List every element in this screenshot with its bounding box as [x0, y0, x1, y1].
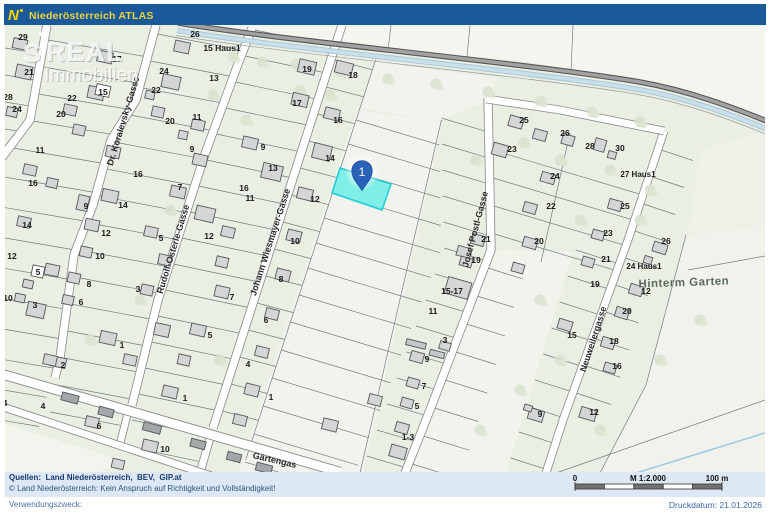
- svg-text:11: 11: [36, 145, 45, 155]
- svg-text:13: 13: [209, 73, 219, 83]
- svg-text:3: 3: [443, 335, 448, 345]
- svg-text:20: 20: [56, 109, 66, 119]
- svg-text:16: 16: [612, 361, 622, 371]
- svg-text:12: 12: [310, 194, 320, 204]
- svg-text:24: 24: [12, 104, 22, 114]
- svg-text:3: 3: [136, 284, 141, 294]
- svg-text:9: 9: [261, 142, 266, 152]
- svg-text:12: 12: [101, 228, 111, 238]
- svg-text:10: 10: [5, 293, 13, 303]
- svg-text:27 Haus1: 27 Haus1: [620, 170, 656, 179]
- svg-text:20: 20: [622, 306, 632, 316]
- svg-text:19: 19: [590, 279, 600, 289]
- svg-text:14: 14: [22, 220, 32, 230]
- svg-text:11: 11: [429, 306, 438, 316]
- svg-text:23: 23: [603, 228, 613, 238]
- svg-text:16: 16: [28, 178, 38, 188]
- svg-text:10: 10: [95, 251, 105, 261]
- svg-text:4: 4: [246, 359, 251, 369]
- svg-text:25: 25: [620, 201, 630, 211]
- svg-text:21: 21: [481, 234, 491, 244]
- svg-text:22: 22: [67, 93, 77, 103]
- svg-text:M 1:2.000: M 1:2.000: [630, 474, 667, 483]
- svg-text:16: 16: [333, 115, 343, 125]
- svg-text:15 Haus1: 15 Haus1: [203, 43, 241, 53]
- svg-text:9: 9: [190, 144, 195, 154]
- svg-text:30: 30: [615, 143, 625, 153]
- svg-text:8: 8: [87, 279, 92, 289]
- svg-text:7: 7: [230, 292, 235, 302]
- svg-text:11: 11: [246, 193, 255, 203]
- svg-text:22: 22: [151, 85, 161, 95]
- svg-text:13: 13: [268, 163, 278, 173]
- svg-text:6: 6: [79, 297, 84, 307]
- svg-text:5: 5: [36, 267, 41, 277]
- svg-text:Immobilien: Immobilien: [44, 64, 138, 86]
- svg-text:16: 16: [133, 169, 143, 179]
- svg-text:9: 9: [538, 409, 543, 419]
- svg-text:14: 14: [118, 200, 128, 210]
- svg-text:REAL: REAL: [46, 37, 124, 67]
- svg-text:9: 9: [425, 354, 430, 364]
- svg-text:15: 15: [567, 330, 577, 340]
- svg-text:7: 7: [422, 381, 427, 391]
- svg-text:1: 1: [183, 393, 188, 403]
- svg-text:12: 12: [589, 407, 599, 417]
- svg-text:2: 2: [61, 360, 66, 370]
- svg-text:6: 6: [97, 421, 102, 431]
- svg-text:24: 24: [550, 171, 560, 181]
- svg-text:15: 15: [98, 87, 108, 97]
- svg-text:5: 5: [415, 401, 420, 411]
- svg-text:11: 11: [193, 112, 202, 122]
- svg-text:4: 4: [5, 398, 8, 408]
- svg-text:20: 20: [534, 236, 544, 246]
- svg-text:1-3: 1-3: [402, 432, 415, 442]
- svg-text:0: 0: [573, 474, 578, 483]
- svg-text:9: 9: [84, 201, 89, 211]
- svg-text:24: 24: [159, 66, 169, 76]
- svg-text:14: 14: [325, 153, 335, 163]
- svg-text:4: 4: [41, 401, 46, 411]
- svg-text:23: 23: [507, 144, 517, 154]
- svg-text:19: 19: [302, 64, 312, 74]
- svg-text:7: 7: [178, 182, 183, 192]
- svg-text:28: 28: [585, 141, 595, 151]
- svg-text:12: 12: [7, 251, 17, 261]
- svg-text:16: 16: [239, 183, 249, 193]
- svg-text:1: 1: [269, 392, 274, 402]
- svg-text:26: 26: [560, 128, 570, 138]
- svg-text:10: 10: [160, 444, 170, 454]
- svg-text:15-17: 15-17: [441, 286, 463, 296]
- svg-text:12: 12: [204, 231, 214, 241]
- svg-text:10: 10: [290, 236, 300, 246]
- svg-text:20: 20: [165, 116, 175, 126]
- svg-text:1: 1: [359, 165, 366, 179]
- svg-text:17: 17: [292, 98, 302, 108]
- svg-text:5: 5: [208, 330, 213, 340]
- svg-text:5: 5: [159, 233, 164, 243]
- svg-text:26: 26: [190, 29, 200, 39]
- svg-text:25: 25: [519, 115, 529, 125]
- svg-text:26: 26: [661, 236, 671, 246]
- svg-text:8: 8: [279, 274, 284, 284]
- svg-text:6: 6: [264, 315, 269, 325]
- svg-text:22: 22: [546, 201, 556, 211]
- svg-text:1: 1: [120, 340, 125, 350]
- svg-text:18: 18: [348, 70, 358, 80]
- svg-text:3: 3: [33, 300, 38, 310]
- svg-text:100 m: 100 m: [706, 474, 729, 483]
- svg-text:18: 18: [609, 336, 619, 346]
- svg-text:28: 28: [5, 92, 13, 102]
- svg-text:s: s: [23, 32, 42, 70]
- svg-text:21: 21: [601, 254, 611, 264]
- svg-text:24 Haus1: 24 Haus1: [626, 262, 662, 271]
